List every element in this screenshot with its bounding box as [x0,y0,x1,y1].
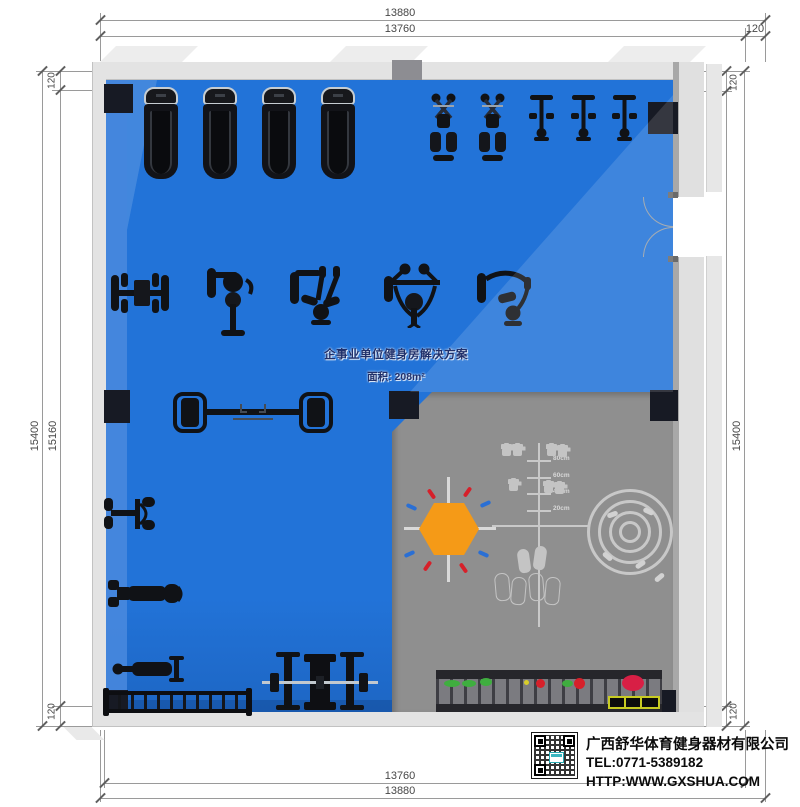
barbell-collar [316,676,324,689]
treadmill-deck [144,104,178,179]
qr-finder [563,735,575,747]
red-dash [463,486,473,497]
treadmill-console [144,87,178,105]
blue-dash [478,550,490,558]
pillar [389,391,419,419]
height-mark-60cm: 60cm [553,472,570,479]
dumbbell-rack [105,691,250,713]
grid-tick [527,460,551,462]
target-dash [654,572,666,583]
footprint-outline [528,572,545,601]
red-dash [427,488,437,499]
treadmill [203,87,237,179]
footprint-outline [544,576,561,605]
treadmill-deck [203,104,237,179]
grid-tick [527,493,551,495]
yellow-accessory [524,680,529,685]
qr-finder [534,735,546,747]
door-jamb [668,192,678,198]
green-accessory [480,678,492,686]
strength-machine-arm [476,267,537,328]
grid-tick [527,510,551,512]
dim-ext [36,71,94,72]
grid-tick [527,477,551,479]
qr-finder [534,764,546,776]
red-dash [423,560,433,571]
pec-machine [104,496,158,532]
footprint [516,548,531,573]
dim-line-top-clear [100,36,765,37]
qr-logo [549,752,564,763]
dim-label-top-total: 13880 [330,7,470,19]
handprint [502,447,511,456]
upright-bike [571,94,596,142]
green-accessory [462,680,476,687]
plan-area-label: 面积: 208m² [306,369,486,384]
roof-slab [100,46,198,62]
treadmill-deck [321,104,355,179]
functional-zone: 80cm 60cm 40cm 20cm [392,392,673,712]
dim-ext [100,730,101,802]
treadmill-deck [262,104,296,179]
elliptical-trainer [427,92,460,164]
storage-rack [436,670,662,712]
dim-label-left-total: 15400 [29,408,41,464]
gym-floor-plan: 13880 13760 120 13760 13880 15400 15160 … [0,0,800,807]
dim-label-right-total: 15400 [731,408,743,464]
elliptical-trainer [476,92,509,164]
treadmill-console [203,87,237,105]
target-ring [619,521,641,543]
blue-dash [406,503,418,511]
treadmill [262,87,296,179]
wall-top-dark-block [392,60,422,82]
plan-title: 企事业单位健身房解决方案 [306,346,486,362]
handprint [509,482,518,491]
dim-line-bottom-total [100,798,765,799]
wall-corner-slab [64,727,105,740]
dim-label-left-wall-bottom: 120 [47,698,58,726]
dual-half-rack [173,392,333,433]
pillar [650,390,678,421]
footprint-outline [494,572,511,601]
bench-press-rack [262,652,378,712]
roof-slab [608,46,706,62]
green-accessory [562,680,573,687]
red-accessory [536,679,545,688]
dim-line-right-clear [726,70,727,727]
company-tel: TEL:0771-5389182 [586,755,703,770]
grid-horizontal-line [492,525,589,527]
dim-label-top-wall: 120 [740,23,770,35]
company-block: 广西舒华体育健身器材有限公司 TEL:0771-5389182 HTTP:WWW… [528,728,798,798]
wall-outer-strip-upper [706,64,722,192]
rack-post [103,688,109,716]
hexagon-marking [419,503,479,555]
red-ball [622,675,644,691]
footprint [532,545,547,570]
strength-machine-press [110,272,170,314]
upright-bike [529,94,554,142]
dim-label-left-clear: 15160 [47,408,59,464]
footprint-outline [510,576,527,605]
red-accessory [574,678,585,689]
handprint [555,485,564,494]
upright-bike [612,94,637,142]
treadmill-console [262,87,296,105]
dim-label-top-clear: 13760 [330,23,470,35]
barbell-plate [359,673,368,692]
dim-label-bottom-total: 13880 [330,785,470,797]
strength-machine-pulldown [383,262,444,328]
handprint [513,447,522,456]
blue-dash [404,550,416,558]
handprint [547,447,556,456]
company-name: 广西舒华体育健身器材有限公司 [586,733,789,754]
strength-machine-column [206,262,258,338]
dim-line-left-total [42,70,43,727]
green-accessory [444,680,460,687]
dim-line-left-clear [60,70,61,727]
height-mark-20cm: 20cm [553,505,570,512]
red-dash [459,562,469,573]
pillar [104,84,133,113]
wall-bottom [92,712,704,727]
dim-label-right-wall-bottom: 120 [729,698,740,726]
step-platform [608,696,660,709]
dim-line-right-total [744,70,745,727]
dim-label-right-wall-top: 120 [729,69,740,97]
dim-line-top-total [100,20,765,21]
barbell-plate [270,673,279,692]
door-opening [673,197,704,257]
wall-outer-strip-lower [706,256,722,727]
blue-dash [480,500,492,508]
qr-code [531,732,578,779]
pillar [104,390,130,423]
treadmill [144,87,178,179]
rack-post [246,688,252,716]
treadmill [321,87,355,179]
handprint [544,484,553,493]
dim-label-left-wall-top: 120 [47,67,58,95]
flat-bench [112,655,190,683]
strength-machine-fly [289,264,347,327]
pillar [648,102,678,134]
dim-label-bottom-clear: 13760 [330,770,470,782]
door-jamb [668,256,678,262]
company-website: HTTP:WWW.GXSHUA.COM [586,774,760,789]
treadmill-console [321,87,355,105]
handprint [558,448,567,457]
adjustable-bench [108,577,184,611]
